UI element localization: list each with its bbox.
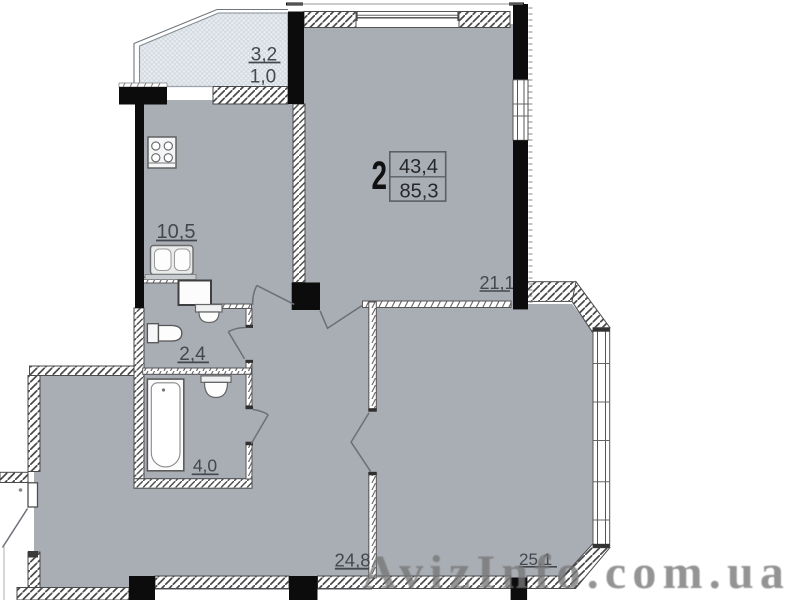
svg-text:AvizInfo.com.ua: AvizInfo.com.ua	[362, 546, 790, 599]
svg-text:2: 2	[372, 154, 388, 198]
svg-text:85,3: 85,3	[400, 181, 439, 203]
svg-text:1,0: 1,0	[250, 67, 276, 88]
svg-text:4,0: 4,0	[193, 456, 218, 476]
svg-text:43,4: 43,4	[399, 156, 438, 178]
svg-text:21,1: 21,1	[480, 273, 515, 293]
